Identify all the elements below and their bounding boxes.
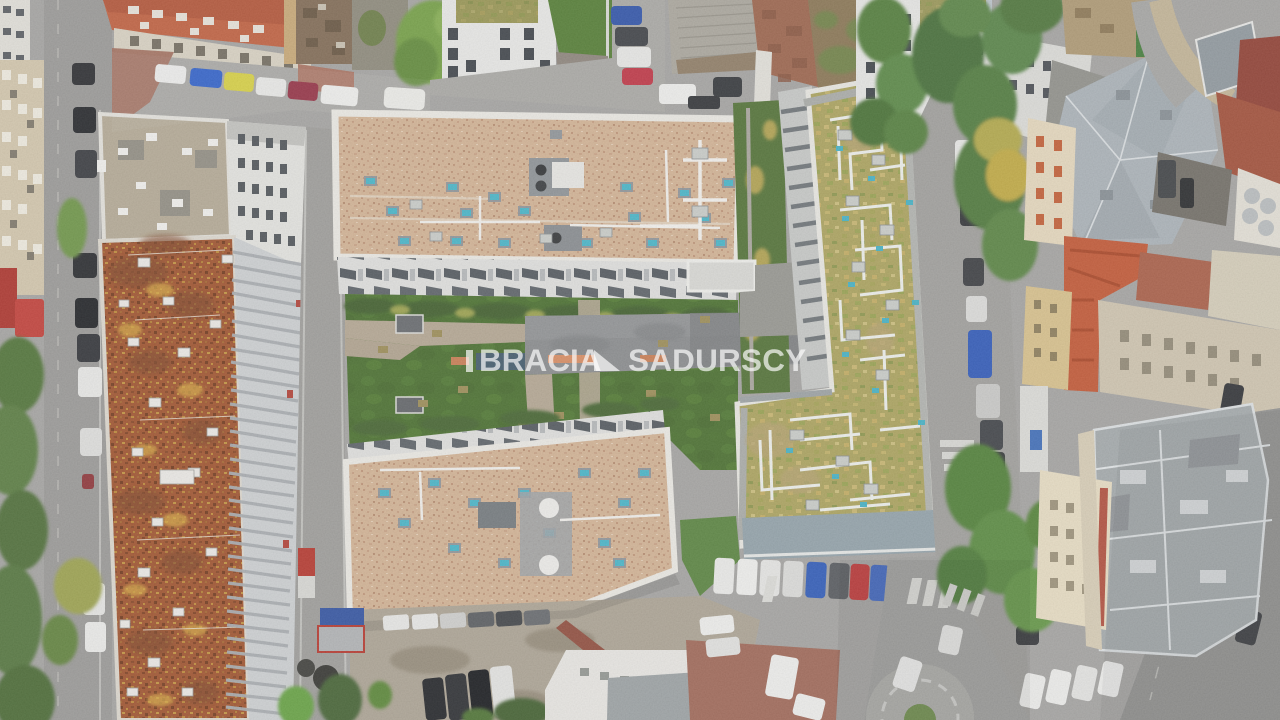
svg-text:SADURSCY: SADURSCY	[628, 342, 806, 378]
svg-text:BRACIA: BRACIA	[479, 342, 602, 378]
